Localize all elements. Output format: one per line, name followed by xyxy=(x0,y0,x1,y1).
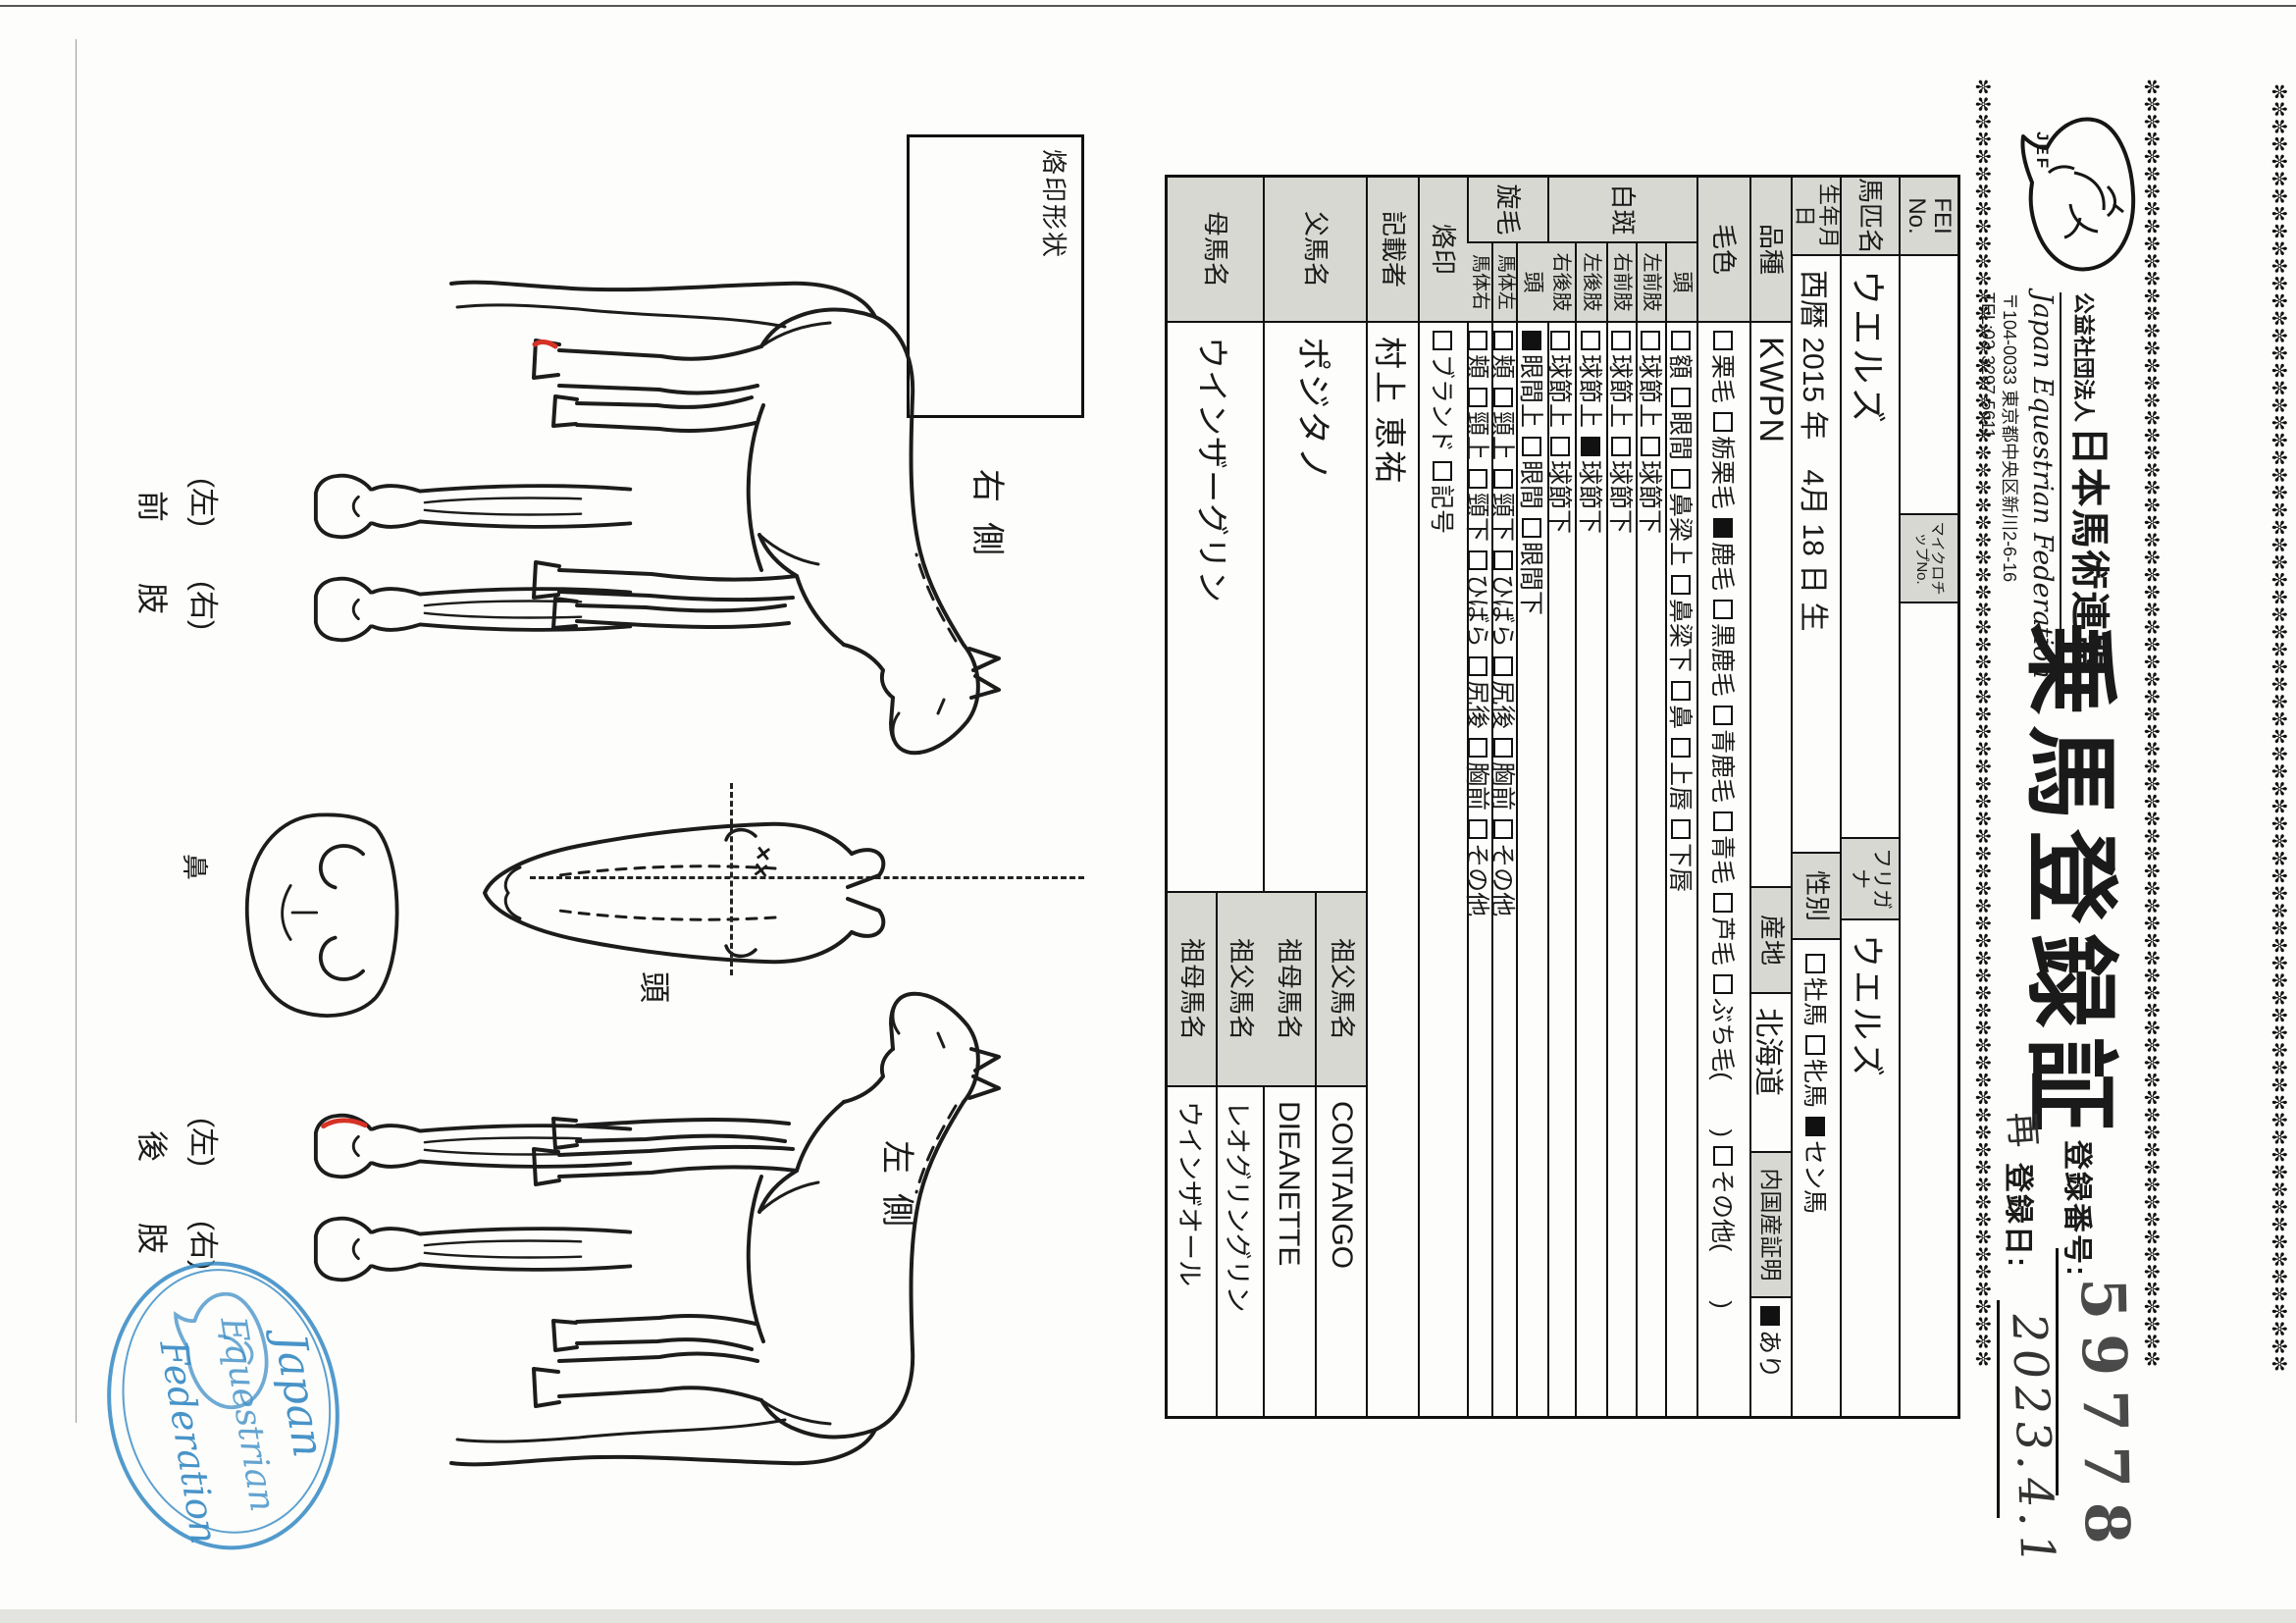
front-legs-label: 前肢 xyxy=(131,491,177,675)
dam-gp1-row: 祖父馬名 レオグリングリン xyxy=(1216,891,1263,1416)
markings-sub-label: 右後肢 xyxy=(1547,243,1575,323)
checkbox-unchecked xyxy=(1469,550,1488,570)
checkbox-unchecked xyxy=(1433,331,1452,350)
microchip-label: マイクロチップNo. xyxy=(1901,513,1957,603)
asterisk-border-top: ✼✼✼✼✼✼✼✼✼✼✼✼✼✼✼✼✼✼✼✼✼✼✼✼✼✼✼✼✼✼✼✼✼✼✼✼✼✼✼✼… xyxy=(2269,83,2288,1531)
jef-logo-text: JEF xyxy=(2033,131,2052,171)
birth-label: 生年月日 xyxy=(1793,178,1840,256)
checkbox-option-label: 頸上 xyxy=(1464,411,1491,460)
red-marking-hind-left-hoof xyxy=(324,1121,365,1126)
dam-gp2-label: 祖母馬名 xyxy=(1168,891,1216,1087)
checkbox-option-label: ひばら xyxy=(1464,574,1491,648)
markings-label: 白斑 xyxy=(1549,178,1696,243)
certificate-page: ✼✼✼✼✼✼✼✼✼✼✼✼✼✼✼✼✼✼✼✼✼✼✼✼✼✼✼✼✼✼✼✼✼✼✼✼✼✼✼✼… xyxy=(0,0,2296,1623)
checkbox-unchecked xyxy=(1469,738,1488,758)
whorls-head-options: 眼間上眼間眼間下 xyxy=(1518,323,1547,1416)
checkbox-option: 青鹿毛 xyxy=(1706,706,1742,803)
checkbox-option: ブランド xyxy=(1426,331,1461,452)
dam-value: ウインザーグリン xyxy=(1168,323,1263,891)
domestic-label: 内国産証明 xyxy=(1751,1151,1791,1298)
checkbox-option: 球節下 xyxy=(1604,437,1640,534)
org-type: 公益社団法人 xyxy=(2071,292,2096,422)
checkbox-unchecked xyxy=(1469,819,1488,839)
checkbox-unchecked xyxy=(1550,331,1570,350)
checkbox-option-label: 記号 xyxy=(1428,485,1455,534)
checkbox-option-label: 球節下 xyxy=(1636,460,1663,534)
name-label: 馬匹名 xyxy=(1842,178,1899,256)
checkbox-option: 黒鹿毛 xyxy=(1706,600,1742,697)
sex-label: 性別 xyxy=(1793,852,1840,940)
scan-edge-shadow xyxy=(0,1609,2296,1623)
reg-date-label: 登録日: xyxy=(2000,1163,2043,1269)
whorls-sub-label: 馬体左 xyxy=(1493,243,1516,323)
checkbox-option: 鼻梁下 xyxy=(1664,575,1699,672)
checkbox-unchecked xyxy=(1494,331,1514,350)
checkbox-unchecked xyxy=(1494,469,1514,489)
fei-value xyxy=(1901,256,1957,513)
checkbox-unchecked xyxy=(1469,331,1488,350)
dam-gp2-value: ウインザオール xyxy=(1168,1087,1216,1416)
horse-muzzle-figure xyxy=(240,790,417,1035)
checkbox-unchecked xyxy=(1641,331,1660,350)
dam-gp1-label: 祖父馬名 xyxy=(1218,891,1263,1087)
checkbox-option-label: 青毛 xyxy=(1708,835,1736,884)
checkbox-unchecked xyxy=(1671,469,1691,489)
muzzle-figure-label: 鼻 xyxy=(178,854,216,880)
checkbox-unchecked xyxy=(1611,437,1631,456)
scan-edge-line xyxy=(0,5,2296,7)
checkbox-option: その他( ) xyxy=(1706,1146,1742,1309)
brand-options: ブランド記号 xyxy=(1420,323,1467,1416)
checkbox-option: ぶち毛( ) xyxy=(1706,974,1742,1137)
table-row-coat: 毛色 栗毛栃栗毛鹿毛黒鹿毛青鹿毛青毛芦毛ぶち毛( )その他( ) xyxy=(1696,178,1749,1416)
checkbox-option-label: その他 xyxy=(1464,843,1491,916)
document-title: 乗馬登録証 xyxy=(2010,621,2147,1141)
markings-row-lf: 左前肢 球節上球節下 xyxy=(1636,243,1665,1416)
origin-value: 北海道 xyxy=(1751,994,1791,1151)
sire-label: 父馬名 xyxy=(1265,178,1366,323)
checkbox-option-label: 頸下 xyxy=(1464,493,1491,542)
checkbox-checked xyxy=(1805,1117,1825,1136)
checkbox-option-label: 栃栗毛 xyxy=(1708,436,1736,509)
table-group-markings: 白斑 頭 額眼間鼻梁上鼻梁下鼻上唇下唇 左前肢 球節上球節下 右前肢 球節上球節… xyxy=(1547,178,1696,1416)
checkbox-option-label: 眼間 xyxy=(1666,411,1694,460)
checkbox-option-label: 球節下 xyxy=(1576,460,1603,534)
checkbox-option: 芦毛 xyxy=(1706,893,1742,966)
checkbox-option: 記号 xyxy=(1426,461,1461,534)
front-leg-left-paren: (左) xyxy=(184,478,228,527)
checkbox-option-label: 上唇 xyxy=(1666,761,1694,811)
sire-gp1-value: CONTANGO xyxy=(1317,1087,1366,1416)
checkbox-unchecked xyxy=(1494,819,1514,839)
registration-table: FEI No. マイクロチップNo. 馬匹名 ウエルズ フリガナ ウエルズ 生年… xyxy=(1165,175,1960,1419)
checkbox-option-label: セン馬 xyxy=(1800,1140,1828,1214)
checkbox-option-label: 球節上 xyxy=(1606,354,1634,428)
table-row-brand: 烙印 ブランド記号 xyxy=(1418,178,1467,1416)
checkbox-option-label: 球節下 xyxy=(1606,460,1634,534)
table-row-breed: 品種 KWPN 産地 北海道 内国産証明 あり xyxy=(1749,178,1791,1416)
checkbox-unchecked xyxy=(1671,575,1691,595)
birth-value: 西暦 2015 年 4月 18 日 生 xyxy=(1793,256,1840,852)
checkbox-option: 牝馬 xyxy=(1799,1035,1834,1108)
markings-sub-label: 頭 xyxy=(1667,243,1696,323)
brand-label: 烙印 xyxy=(1420,178,1467,323)
whorls-sub-label: 頭 xyxy=(1518,243,1547,323)
checkbox-unchecked xyxy=(1611,331,1631,350)
checkbox-option: 鼻 xyxy=(1664,681,1699,729)
whorls-br-options: 頬頸上頸下ひばら尻後胸前その他 xyxy=(1467,323,1491,1416)
checkbox-option: 眼間 xyxy=(1664,388,1699,460)
checkbox-option: セン馬 xyxy=(1799,1117,1834,1214)
reissue-mark: 再 xyxy=(1999,1110,2052,1149)
checkbox-unchecked xyxy=(1713,893,1733,913)
checkbox-unchecked xyxy=(1550,437,1570,456)
checkbox-unchecked xyxy=(1641,437,1660,456)
checkbox-unchecked xyxy=(1713,811,1733,831)
sire-gp2-label: 祖母馬名 xyxy=(1263,891,1315,1087)
name-value: ウエルズ xyxy=(1842,256,1899,837)
checkbox-unchecked xyxy=(1671,331,1691,350)
checkbox-option-label: 栗毛 xyxy=(1708,354,1736,403)
furigana-label: フリガナ xyxy=(1842,837,1899,920)
checkbox-option: 鼻梁上 xyxy=(1664,469,1699,566)
checkbox-option: 牡馬 xyxy=(1799,954,1834,1026)
recorder-label: 記載者 xyxy=(1368,178,1418,323)
brand-shape-label: 烙印形状 xyxy=(1037,137,1081,415)
markings-sub-label: 左後肢 xyxy=(1577,243,1606,323)
checkbox-unchecked xyxy=(1494,656,1514,676)
checkbox-unchecked xyxy=(1805,1035,1825,1055)
domestic-options: あり xyxy=(1751,1298,1791,1416)
sire-gp1-row: 祖父馬名 CONTANGO xyxy=(1315,891,1366,1416)
checkbox-unchecked xyxy=(1494,550,1514,570)
checkbox-option-label: 鹿毛 xyxy=(1708,542,1736,591)
checkbox-checked xyxy=(1713,518,1733,538)
checkbox-option-label: 鼻 xyxy=(1666,705,1694,729)
markings-row-rf: 右前肢 球節上球節下 xyxy=(1606,243,1636,1416)
sire-value: ポジタノ xyxy=(1265,323,1366,891)
checkbox-unchecked xyxy=(1581,331,1600,350)
checkbox-unchecked xyxy=(1522,518,1541,538)
org-tel: TEL:03-3297-5611 xyxy=(1977,292,1998,705)
checkbox-option-label: 尻後 xyxy=(1464,680,1491,729)
table-row-birth: 生年月日 西暦 2015 年 4月 18 日 生 性別 牡馬牝馬セン馬 xyxy=(1791,178,1840,1416)
table-row-fei: FEI No. マイクロチップNo. xyxy=(1899,178,1957,1416)
sire-gp2-value: DIEANETTE xyxy=(1263,1087,1315,1416)
checkbox-unchecked xyxy=(1713,974,1733,994)
federation-stamp: Japan Equestrian Federation xyxy=(86,1244,359,1566)
checkbox-option: 額 xyxy=(1664,331,1699,379)
checkbox-option: 青毛 xyxy=(1706,811,1742,884)
markings-lh-options: 球節上球節下 xyxy=(1577,323,1606,1416)
hind-leg-left-figure xyxy=(231,1099,638,1193)
reg-no-value: 59778 xyxy=(2067,1277,2144,1558)
checkbox-unchecked xyxy=(1522,437,1541,456)
breed-value: KWPN xyxy=(1751,323,1791,886)
checkbox-option: あり xyxy=(1753,1306,1789,1379)
origin-label: 産地 xyxy=(1751,886,1791,994)
checkbox-option: 栃栗毛 xyxy=(1706,412,1742,509)
table-row-dam: 母馬名 ウインザーグリン 祖父馬名 レオグリングリン 祖母馬名 ウインザオール xyxy=(1168,178,1263,1416)
markings-rh-options: 球節上球節下 xyxy=(1547,323,1575,1416)
checkbox-option-label: 頬 xyxy=(1464,354,1491,379)
checkbox-option-label: 黒鹿毛 xyxy=(1708,623,1736,697)
checkbox-option-label: 鼻梁上 xyxy=(1666,493,1694,566)
whorl-x-marks: ×× xyxy=(745,844,779,881)
checkbox-option: 球節上 xyxy=(1574,331,1609,428)
checkbox-option-label: 青鹿毛 xyxy=(1708,729,1736,803)
dam-label: 母馬名 xyxy=(1168,178,1263,323)
markings-sub-label: 右前肢 xyxy=(1608,243,1636,323)
checkbox-unchecked xyxy=(1433,461,1452,481)
whorls-row-bodyright: 馬体右 頬頸上頸下ひばら尻後胸前その他 xyxy=(1467,243,1491,1416)
markings-row-lh: 左後肢 球節上球節下 xyxy=(1575,243,1606,1416)
markings-head-options: 額眼間鼻梁上鼻梁下鼻上唇下唇 xyxy=(1667,323,1696,1416)
checkbox-option-label: 額 xyxy=(1666,354,1694,379)
checkbox-option-label: ぶち毛( ) xyxy=(1708,998,1736,1137)
checkbox-unchecked xyxy=(1469,388,1488,407)
markings-row-head: 頭 額眼間鼻梁上鼻梁下鼻上唇下唇 xyxy=(1665,243,1696,1416)
checkbox-option-label: あり xyxy=(1755,1330,1783,1379)
checkbox-unchecked xyxy=(1494,388,1514,407)
checkbox-option-label: 球節上 xyxy=(1636,354,1663,428)
checkbox-unchecked xyxy=(1713,706,1733,725)
whorls-label: 旋毛 xyxy=(1469,178,1547,243)
checkbox-checked xyxy=(1581,437,1600,456)
table-group-whorls: 旋毛 頭 眼間上眼間眼間下 馬体左 頬頸上頸下ひばら尻後胸前その他 馬体右 頬頸… xyxy=(1467,178,1547,1416)
checkbox-option-label: 鼻梁下 xyxy=(1666,599,1694,672)
horse-head-front-figure xyxy=(471,785,893,991)
checkbox-option: 栗毛 xyxy=(1706,331,1742,403)
table-row-sire: 父馬名 ポジタノ 祖父馬名 CONTANGO 祖母馬名 DIEANETTE xyxy=(1263,178,1366,1416)
checkbox-unchecked xyxy=(1469,656,1488,676)
recorder-value: 村上 恵祐 xyxy=(1368,323,1418,1416)
checkbox-checked xyxy=(1522,331,1541,350)
checkbox-unchecked xyxy=(1713,600,1733,619)
checkbox-unchecked xyxy=(1469,469,1488,489)
scanned-certificate-sheet: ✼✼✼✼✼✼✼✼✼✼✼✼✼✼✼✼✼✼✼✼✼✼✼✼✼✼✼✼✼✼✼✼✼✼✼✼✼✼✼✼… xyxy=(0,0,2296,1623)
front-leg-right-figure xyxy=(231,562,638,656)
reg-date-underline xyxy=(1997,1300,2000,1518)
table-row-name: 馬匹名 ウエルズ フリガナ ウエルズ xyxy=(1840,178,1899,1416)
checkbox-unchecked xyxy=(1671,681,1691,701)
markings-sub-label: 左前肢 xyxy=(1638,243,1665,323)
checkbox-unchecked xyxy=(1671,819,1691,839)
checkbox-option-label: 球節上 xyxy=(1576,354,1603,428)
reg-no-label: 登録番号: xyxy=(2059,1140,2102,1278)
head-centerline-dashed xyxy=(530,876,1084,879)
reg-date-value: 2023.4.1 xyxy=(2001,1310,2064,1573)
jef-logo: JEF xyxy=(2011,110,2141,279)
checkbox-option-label: 牝馬 xyxy=(1800,1059,1828,1108)
checkbox-unchecked xyxy=(1805,954,1825,973)
microchip-value xyxy=(1901,603,1957,1416)
head-figure-label: 頭 xyxy=(634,971,679,1003)
dam-gp1-value: レオグリングリン xyxy=(1218,1087,1263,1416)
checkbox-option-label: 下唇 xyxy=(1666,843,1694,892)
checkbox-unchecked xyxy=(1494,738,1514,758)
checkbox-option-label: ブランド xyxy=(1428,354,1455,452)
markings-lf-options: 球節上球節下 xyxy=(1638,323,1665,1416)
checkbox-unchecked xyxy=(1713,412,1733,432)
paper-bottom-edge xyxy=(76,39,77,1423)
table-row-recorder: 記載者 村上 恵祐 xyxy=(1366,178,1418,1416)
furigana-value: ウエルズ xyxy=(1842,920,1899,1416)
sex-options: 牡馬牝馬セン馬 xyxy=(1793,940,1840,1416)
front-leg-left-figure xyxy=(231,459,638,553)
whorls-sub-label: 馬体右 xyxy=(1467,243,1491,323)
checkbox-option: 下唇 xyxy=(1664,819,1699,892)
hind-leg-left-paren: (左) xyxy=(184,1118,228,1167)
sire-gp1-label: 祖父馬名 xyxy=(1317,891,1366,1087)
coat-options: 栗毛栃栗毛鹿毛黒鹿毛青鹿毛青毛芦毛ぶち毛( )その他( ) xyxy=(1698,323,1749,1416)
checkbox-option: 球節下 xyxy=(1574,437,1609,534)
checkbox-unchecked xyxy=(1671,738,1691,758)
checkbox-checked xyxy=(1760,1306,1780,1326)
coat-label: 毛色 xyxy=(1698,178,1749,323)
red-marking-left-hind xyxy=(535,342,555,346)
dam-gp2-row: 祖母馬名 ウインザオール xyxy=(1168,891,1216,1416)
org-underline xyxy=(2060,292,2061,677)
sire-gp2-row: 祖母馬名 DIEANETTE xyxy=(1263,891,1315,1416)
checkbox-unchecked xyxy=(1713,331,1733,350)
checkbox-option-label: 芦毛 xyxy=(1708,916,1736,966)
checkbox-unchecked xyxy=(1713,1146,1733,1166)
checkbox-option-label: 牡馬 xyxy=(1800,977,1828,1026)
checkbox-option: 鹿毛 xyxy=(1706,518,1742,591)
head-eyeline-dashed xyxy=(730,783,733,975)
checkbox-unchecked xyxy=(1671,388,1691,407)
checkbox-option: 上唇 xyxy=(1664,738,1699,811)
front-leg-right-paren: (右) xyxy=(184,581,228,630)
breed-label: 品種 xyxy=(1751,178,1791,323)
markings-row-rh: 右後肢 球節上球節下 xyxy=(1547,243,1575,1416)
markings-rf-options: 球節上球節下 xyxy=(1608,323,1636,1416)
checkbox-option-label: 胸前 xyxy=(1464,761,1491,811)
checkbox-option-label: その他( ) xyxy=(1708,1170,1736,1309)
fei-label: FEI No. xyxy=(1901,178,1957,256)
checkbox-option: 球節上 xyxy=(1604,331,1640,428)
